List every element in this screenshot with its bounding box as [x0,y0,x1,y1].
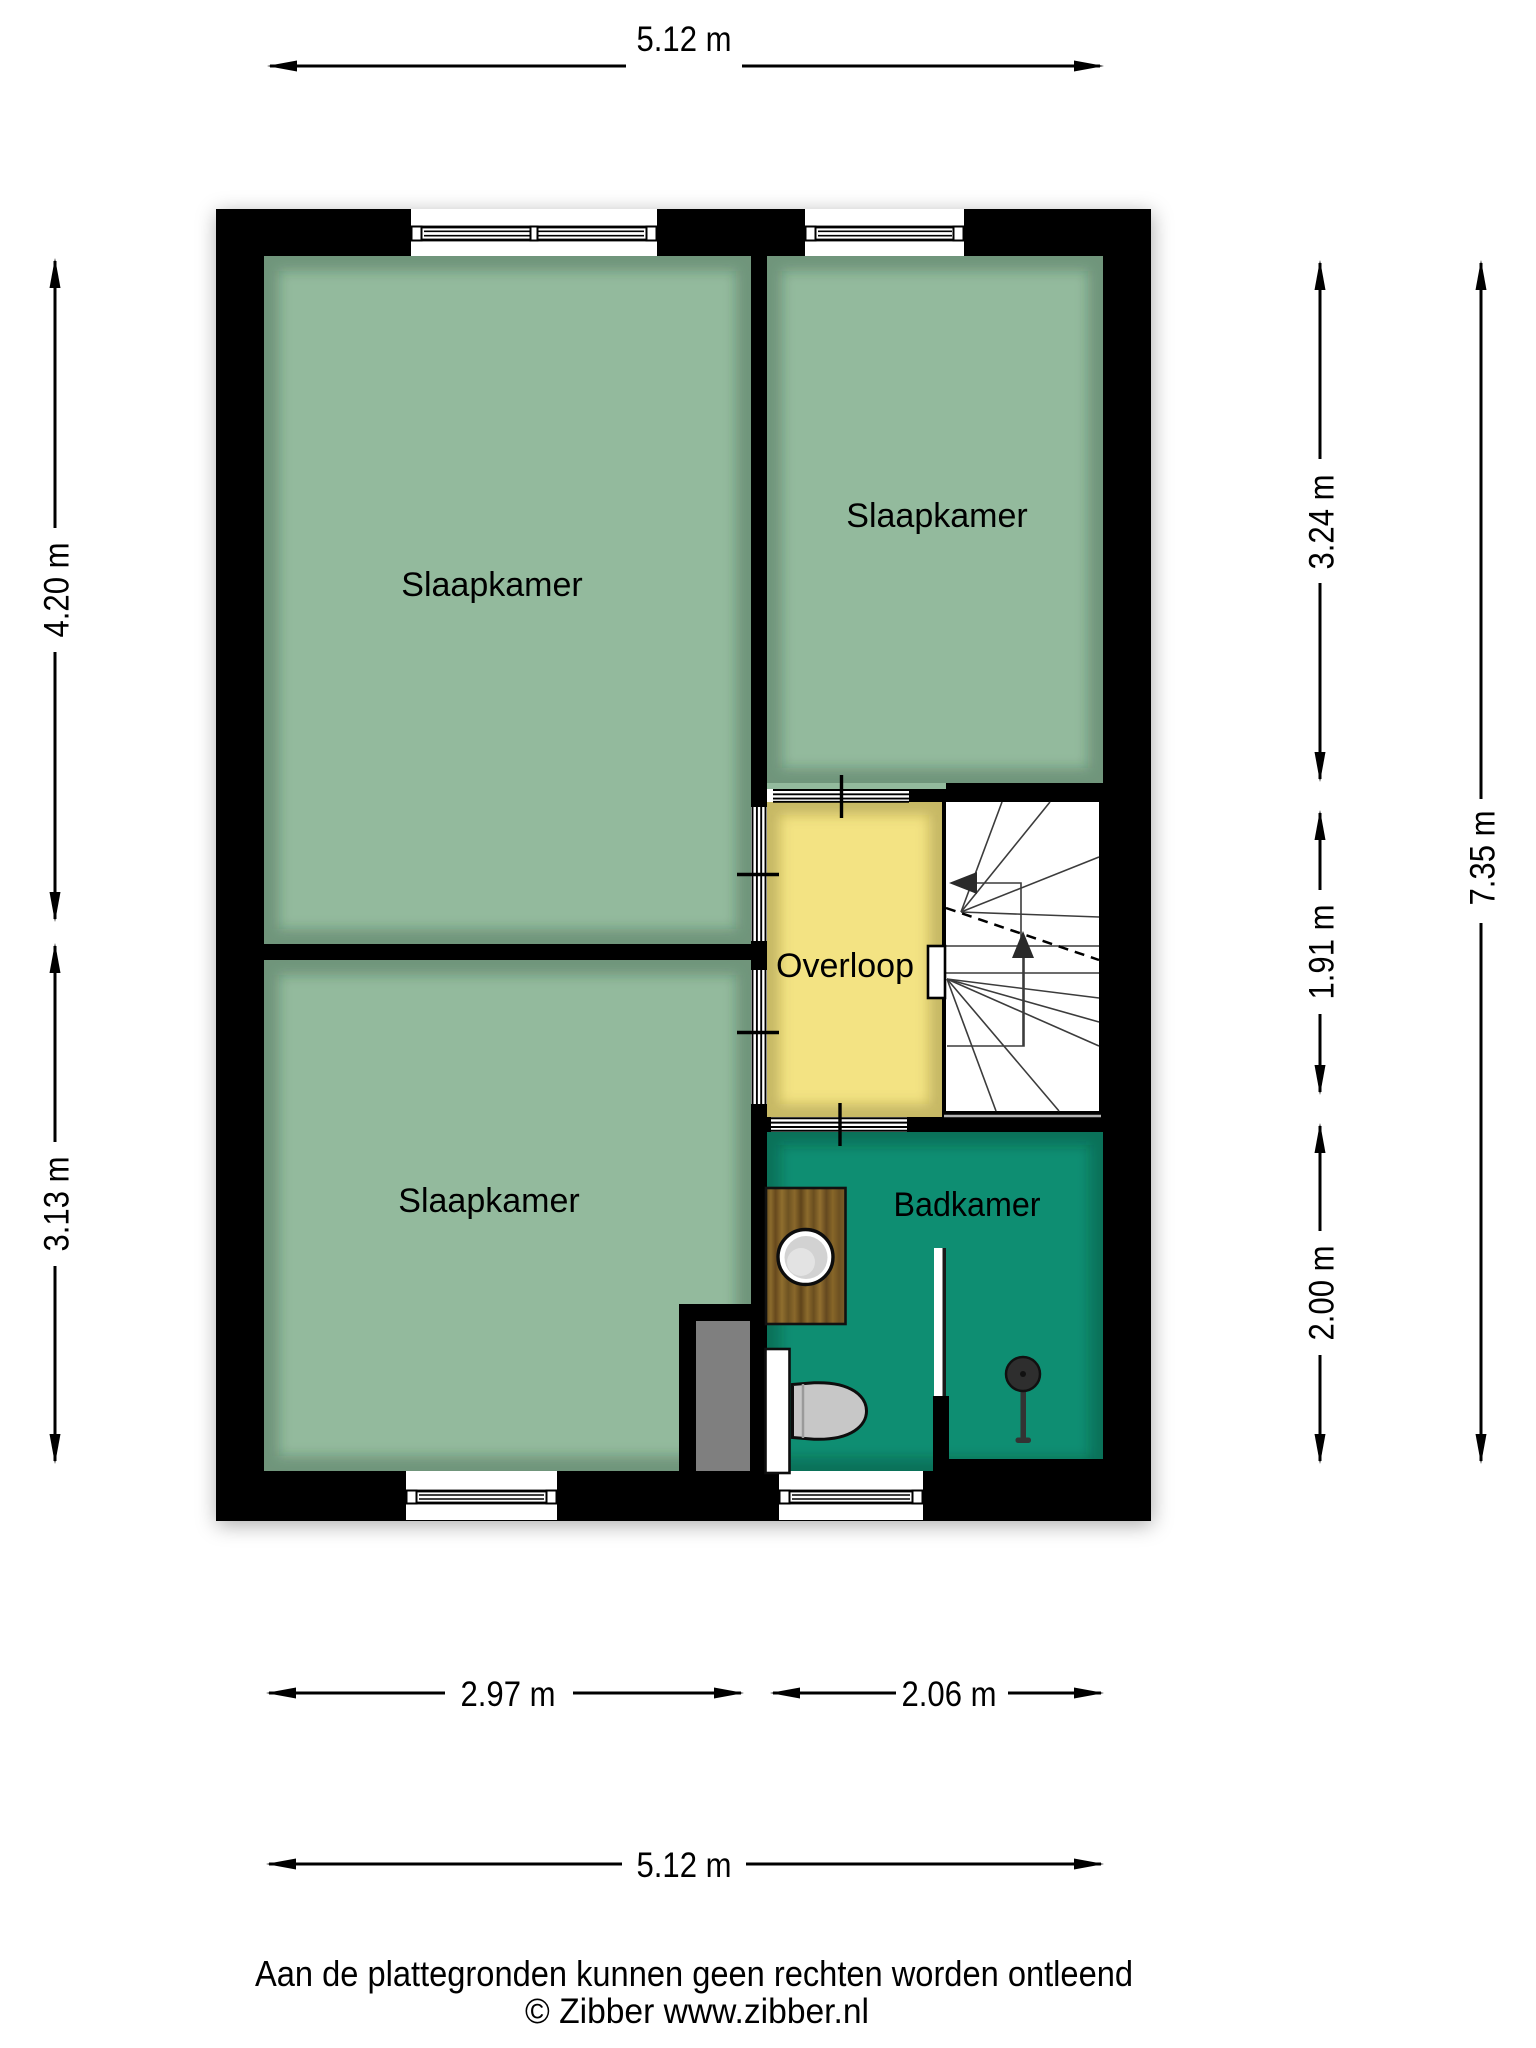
svg-text:Slaapkamer: Slaapkamer [401,566,582,604]
svg-text:2.00 m: 2.00 m [1303,1246,1342,1341]
svg-text:Badkamer: Badkamer [894,1186,1041,1224]
svg-text:Slaapkamer: Slaapkamer [846,497,1027,535]
svg-text:3.24 m: 3.24 m [1303,475,1342,570]
svg-text:Aan de plattegronden kunnen ge: Aan de plattegronden kunnen geen rechten… [255,1953,1133,1994]
svg-text:1.91 m: 1.91 m [1303,905,1342,1000]
svg-text:2.97 m: 2.97 m [461,1675,556,1714]
svg-text:5.12 m: 5.12 m [637,20,732,59]
svg-text:© Zibber www.zibber.nl: © Zibber www.zibber.nl [525,1992,869,2031]
svg-text:Slaapkamer: Slaapkamer [398,1182,579,1220]
svg-text:5.12 m: 5.12 m [637,1846,732,1885]
svg-text:2.06 m: 2.06 m [902,1675,997,1714]
svg-text:3.13 m: 3.13 m [38,1157,77,1252]
svg-text:7.35 m: 7.35 m [1464,811,1503,906]
svg-text:4.20 m: 4.20 m [38,543,77,638]
svg-text:Overloop: Overloop [776,947,914,985]
